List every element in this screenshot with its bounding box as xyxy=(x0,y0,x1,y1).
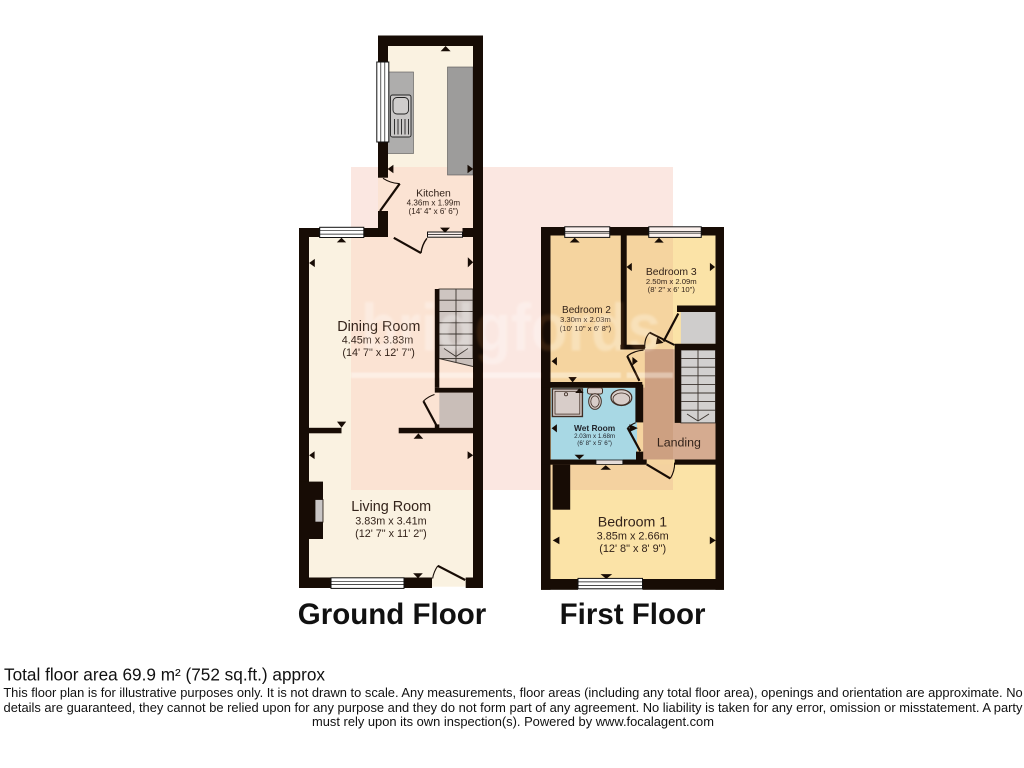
svg-text:First Floor: First Floor xyxy=(560,598,706,631)
svg-text:Ground Floor: Ground Floor xyxy=(298,598,487,631)
svg-text:(6' 8" x 5' 6"): (6' 8" x 5' 6") xyxy=(577,440,612,447)
svg-text:Total floor area 69.9 m² (752: Total floor area 69.9 m² (752 sq.ft.) ap… xyxy=(4,665,325,685)
svg-text:3.83m x 3.41m: 3.83m x 3.41m xyxy=(355,516,426,528)
svg-text:Living Room: Living Room xyxy=(351,499,431,515)
svg-text:Wet Room: Wet Room xyxy=(574,423,615,433)
svg-text:details are guaranteed, they c: details are guaranteed, they cannot be r… xyxy=(4,700,1023,715)
svg-text:must rely upon its own inspect: must rely upon its own inspection(s). Po… xyxy=(312,714,714,729)
svg-text:(12' 8" x 8' 9"): (12' 8" x 8' 9") xyxy=(599,543,666,555)
svg-text:3.85m x 2.66m: 3.85m x 2.66m xyxy=(597,530,669,542)
svg-text:2.03m x 1.68m: 2.03m x 1.68m xyxy=(574,433,615,440)
svg-text:(14' 4" x 6' 6"): (14' 4" x 6' 6") xyxy=(409,207,459,216)
svg-text:Bedroom 1: Bedroom 1 xyxy=(598,514,668,530)
svg-text:Landing: Landing xyxy=(657,435,701,449)
svg-text:bridgfords: bridgfords xyxy=(361,291,661,366)
svg-text:This floor plan is for illustr: This floor plan is for illustrative purp… xyxy=(3,685,1022,700)
svg-text:(12' 7" x 11' 2"): (12' 7" x 11' 2") xyxy=(355,528,427,540)
